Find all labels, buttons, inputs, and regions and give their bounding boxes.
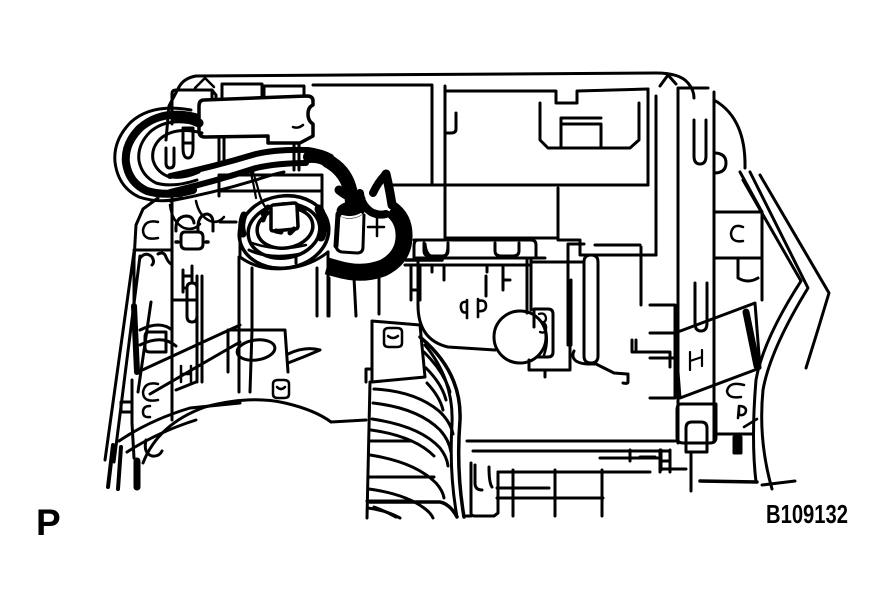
svg-text:B109132: B109132	[766, 499, 848, 529]
svg-text:P: P	[36, 502, 61, 543]
